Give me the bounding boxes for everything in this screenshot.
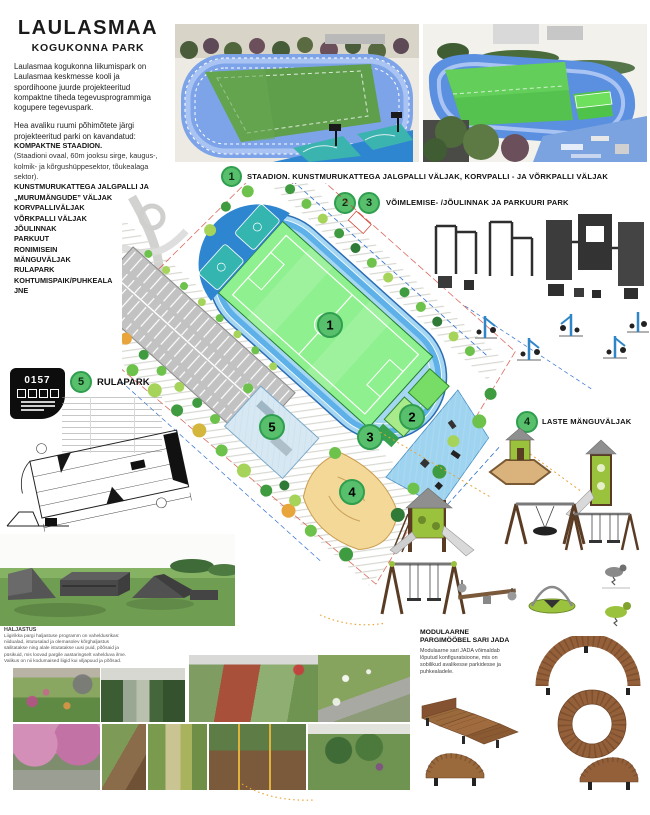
orange-guide-dashes <box>238 782 318 808</box>
competition-badge: 0157 <box>10 368 65 419</box>
intro-text: Laulasmaa kogukonna liikumispark on Laul… <box>14 62 164 150</box>
section-number-text: 4 <box>524 416 530 428</box>
section-number-text: 5 <box>78 376 84 388</box>
gym-machine <box>627 312 649 332</box>
render-gym-machines <box>465 298 650 393</box>
skatepark-plan-drawing <box>5 428 220 532</box>
intro-paragraph-2: Hea avaliku ruumi põhimõtete järgi proje… <box>14 121 164 142</box>
badge-icons <box>10 389 65 398</box>
section-5-title: RULAPARK <box>97 377 150 388</box>
photo-hammock-grove <box>209 724 306 790</box>
render-stadium-aerial-2 <box>423 24 647 162</box>
curved-bench <box>542 640 634 695</box>
badge-code: 0157 <box>10 375 65 386</box>
seesaw <box>458 580 517 604</box>
landscape-note: HALJASTUS Liigirikka pargi haljastuse pr… <box>4 627 132 665</box>
render-playground-equipment <box>372 428 650 630</box>
photo-autumn-path <box>148 724 207 790</box>
section-4-title: LASTE MÄNGUVÄLJAK <box>542 417 647 426</box>
gym-machine <box>475 316 497 338</box>
landscape-note-title: HALJASTUS <box>4 627 132 633</box>
gym-machine <box>603 336 627 358</box>
header: LAULASMAA KOGUKONNA PARK <box>12 18 164 54</box>
lounger <box>426 754 484 786</box>
photo-shrub-border <box>308 724 410 790</box>
circular-bench <box>558 690 626 758</box>
landscape-note-body: Liigirikka pargi haljastuse programm on … <box>4 634 132 665</box>
photo-flower-meadow <box>13 668 100 722</box>
photo-garden-deck <box>102 724 146 790</box>
page-subtitle: KOGUKONNA PARK <box>12 42 164 54</box>
page-title: LAULASMAA <box>12 18 164 38</box>
render-park-furniture <box>420 636 648 796</box>
carousel <box>529 587 575 613</box>
render-calisthenics-equipment <box>428 212 648 304</box>
sandbox-playhouse <box>490 428 550 484</box>
gym-machine <box>559 314 583 336</box>
program-item: KOMPAKTNE STAADION. <box>14 141 164 151</box>
lounger <box>580 758 638 790</box>
play-tower-large <box>390 488 474 556</box>
section-number-text: 1 <box>228 171 234 183</box>
plan-marker-4: 4 <box>348 485 356 500</box>
plan-marker-5: 5 <box>268 420 275 435</box>
poster: LAULASMAA KOGUKONNA PARK Laulasmaa koguk… <box>0 0 650 815</box>
swing-set-large <box>382 561 464 614</box>
gym-machine <box>517 338 541 360</box>
plan-marker-2: 2 <box>408 410 415 425</box>
spring-riders <box>602 565 631 627</box>
program-item: (Staadioni ovaal, 60m jooksu sirge, kaug… <box>14 151 164 182</box>
skatepark-3d-render <box>0 534 235 626</box>
section-1-title: STAADION. KUNSTMURUKATTEGA JALGPALLI VÄL… <box>247 172 647 181</box>
photo-red-path-planting <box>189 655 318 722</box>
badge-microtext <box>21 401 55 411</box>
photo-stone-bench-flowers <box>318 655 410 722</box>
photo-cherry-blossom-path <box>13 724 100 790</box>
plan-marker-1: 1 <box>326 318 333 333</box>
section-5-number: 5 <box>70 371 92 393</box>
intro-paragraph-1: Laulasmaa kogukonna liikumispark on Laul… <box>14 62 164 113</box>
photo-tree-alley <box>101 668 185 722</box>
modular-bench-group <box>422 698 518 748</box>
render-stadium-aerial-1 <box>175 24 419 162</box>
